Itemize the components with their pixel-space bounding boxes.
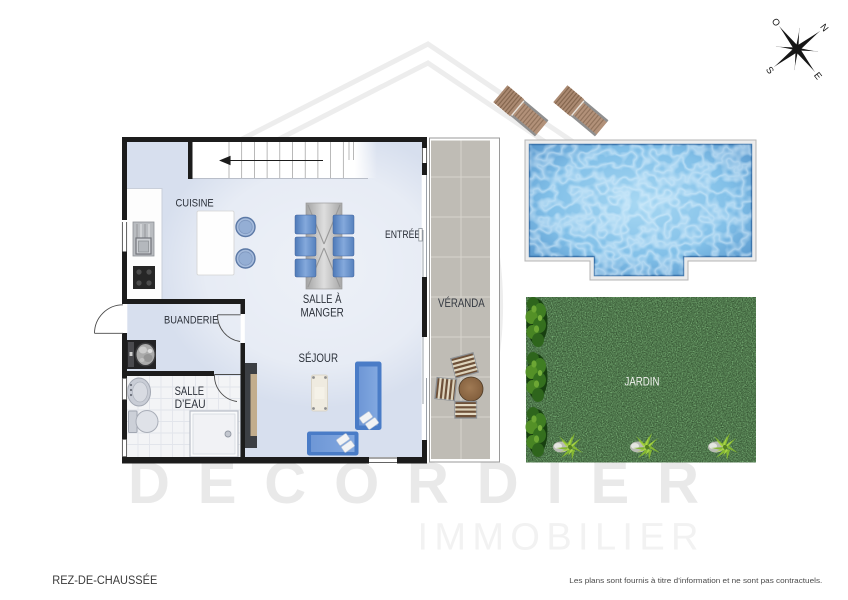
svg-text:REZ-DE-CHAUSSÉE: REZ-DE-CHAUSSÉE [52, 574, 157, 587]
svg-text:CUISINE: CUISINE [176, 197, 214, 209]
svg-text:SÉJOUR: SÉJOUR [299, 352, 339, 365]
svg-text:JARDIN: JARDIN [625, 377, 660, 389]
svg-text:Les plans sont fournis à titre: Les plans sont fournis à titre d’informa… [569, 576, 822, 585]
svg-text:ENTRÉE: ENTRÉE [385, 228, 420, 241]
svg-text:D’EAU: D’EAU [175, 399, 206, 411]
svg-text:VÉRANDA: VÉRANDA [438, 297, 485, 310]
svg-text:IMMOBILIER: IMMOBILIER [418, 517, 699, 559]
svg-text:SALLE À: SALLE À [303, 293, 342, 306]
svg-text:MANGER: MANGER [301, 308, 344, 320]
svg-text:BUANDERIE: BUANDERIE [164, 315, 218, 327]
svg-text:SALLE: SALLE [175, 386, 205, 398]
